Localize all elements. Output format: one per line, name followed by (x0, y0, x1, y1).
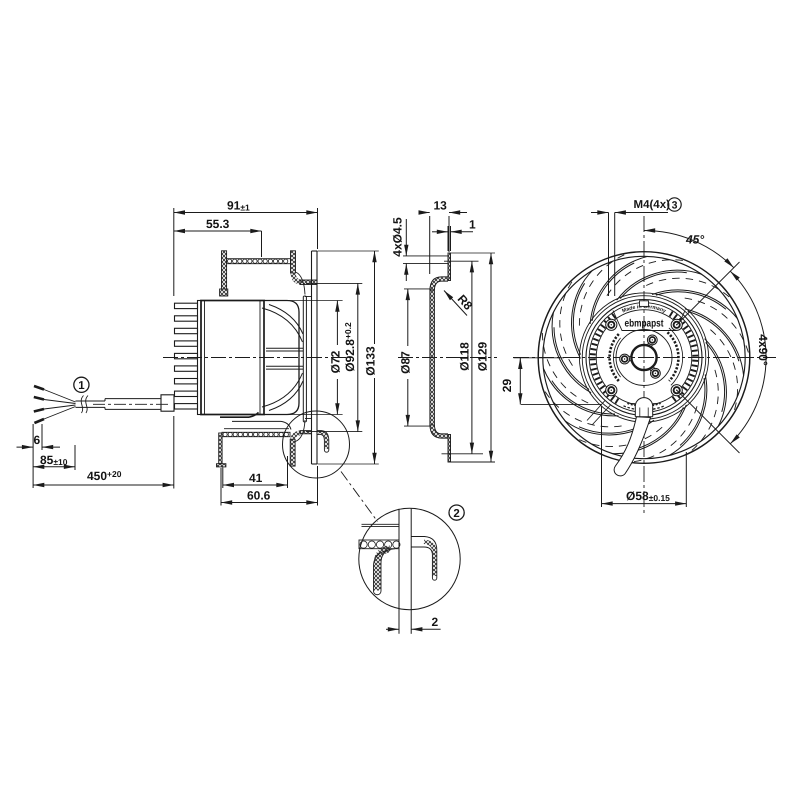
svg-text:4xØ4.5: 4xØ4.5 (391, 217, 405, 257)
svg-text:1: 1 (78, 380, 85, 392)
svg-text:2: 2 (453, 508, 459, 520)
svg-text:Ø118: Ø118 (458, 342, 472, 371)
svg-text:Ø87: Ø87 (398, 351, 412, 374)
svg-text:3: 3 (672, 200, 678, 212)
svg-text:2: 2 (432, 615, 439, 629)
svg-text:M4(4x): M4(4x) (634, 199, 671, 211)
svg-text:Ø72: Ø72 (329, 350, 343, 373)
svg-text:55.3: 55.3 (206, 217, 230, 231)
svg-text:Ø133: Ø133 (364, 346, 378, 376)
svg-text:45°: 45° (685, 233, 704, 247)
svg-text:6: 6 (34, 433, 41, 447)
svg-text:4x90°: 4x90° (756, 334, 770, 366)
svg-text:ebmpapst: ebmpapst (625, 318, 664, 330)
svg-text:60.6: 60.6 (247, 489, 271, 503)
svg-text:1: 1 (469, 218, 476, 232)
svg-text:Ø129: Ø129 (476, 341, 490, 371)
svg-text:41: 41 (249, 471, 263, 485)
svg-text:29: 29 (500, 379, 514, 393)
svg-text:13: 13 (434, 199, 448, 213)
